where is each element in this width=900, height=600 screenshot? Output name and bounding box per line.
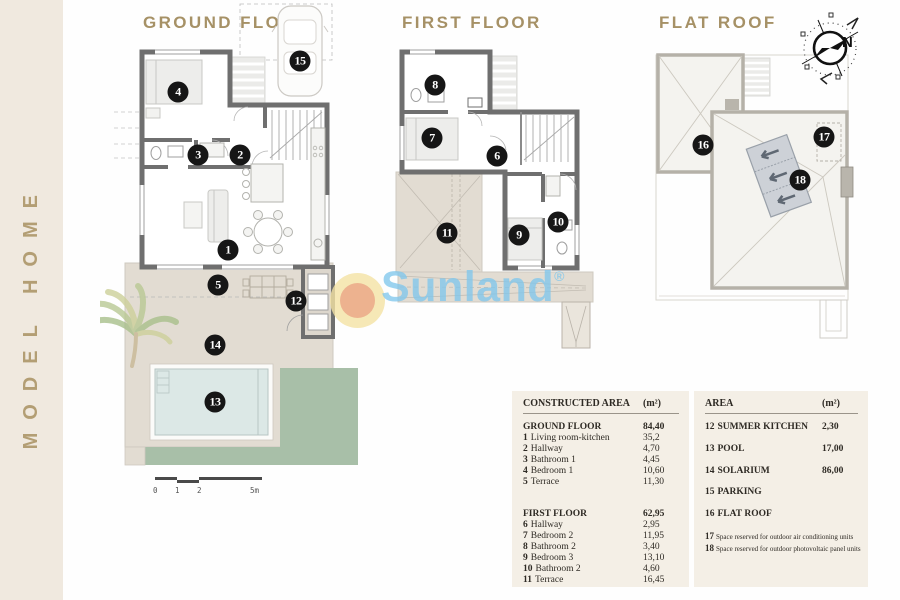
room-marker: 17 bbox=[814, 127, 835, 148]
sun-logo-inner-icon bbox=[340, 283, 375, 318]
sunland-watermark: Sunland® bbox=[330, 262, 600, 342]
flat-roof-plan: 16 17 18 bbox=[645, 45, 880, 345]
table-header: AREA (m²) bbox=[705, 398, 858, 414]
scale-label-1: 1 bbox=[175, 486, 180, 495]
table-row: 6Hallway2,95 bbox=[523, 520, 679, 531]
table-row: 9Bedroom 313,10 bbox=[523, 553, 679, 564]
room-marker: 18 bbox=[790, 170, 811, 191]
constructed-area-table: CONSTRUCTED AREA (m²) GROUND FLOOR 84,40… bbox=[512, 391, 689, 587]
room-marker: 7 bbox=[422, 128, 443, 149]
brand-wrap: MODEL HOME bbox=[0, 138, 63, 494]
room-marker: 3 bbox=[188, 145, 209, 166]
room-marker: 10 bbox=[548, 212, 569, 233]
table-row: 1Living room-kitchen35,2 bbox=[523, 433, 679, 444]
section-title-row: GROUND FLOOR 84,40 bbox=[523, 422, 679, 433]
ground-floor-drawing bbox=[100, 0, 380, 500]
ground-floor-plan: 0 1 2 5m 1 2 3 4 5 12 13 14 15 bbox=[100, 0, 380, 500]
room-marker: 9 bbox=[509, 225, 530, 246]
room-marker: 15 bbox=[290, 51, 311, 72]
table-row: 10Bathroom 24,60 bbox=[523, 564, 679, 575]
scale-bar bbox=[155, 477, 262, 483]
table-row: 2Hallway4,70 bbox=[523, 444, 679, 455]
first-floor-section: FIRST FLOOR 62,95 6Hallway2,95 7Bedroom … bbox=[523, 509, 679, 585]
table-row: 15PARKING bbox=[705, 487, 858, 498]
ground-floor-section: GROUND FLOOR 84,40 1Living room-kitchen3… bbox=[523, 422, 679, 487]
scale-label-2: 2 bbox=[197, 486, 202, 495]
table-row: 4Bedroom 110,60 bbox=[523, 466, 679, 477]
room-marker: 16 bbox=[693, 135, 714, 156]
table-row: 12SUMMER KITCHEN2,30 bbox=[705, 422, 858, 433]
table-row: 14SOLARIUM86,00 bbox=[705, 466, 858, 477]
table-row: 8Bathroom 23,40 bbox=[523, 542, 679, 553]
scale-label-0: 0 bbox=[153, 486, 158, 495]
room-marker: 14 bbox=[205, 335, 226, 356]
room-marker: 11 bbox=[437, 223, 458, 244]
room-marker: 5 bbox=[208, 275, 229, 296]
room-marker: 8 bbox=[425, 75, 446, 96]
compass-north-label: N bbox=[842, 34, 853, 51]
table-row: 5Terrace11,30 bbox=[523, 477, 679, 488]
room-marker: 12 bbox=[286, 291, 307, 312]
room-marker: 1 bbox=[218, 240, 239, 261]
table-row: 7Bedroom 211,95 bbox=[523, 531, 679, 542]
table-header: CONSTRUCTED AREA (m²) bbox=[523, 398, 679, 414]
section-title-row: FIRST FLOOR 62,95 bbox=[523, 509, 679, 520]
area-table: AREA (m²) 12SUMMER KITCHEN2,30 13POOL17,… bbox=[694, 391, 868, 587]
brand-text: MODEL HOME bbox=[20, 182, 43, 449]
flat-roof-drawing bbox=[645, 45, 880, 345]
table-note: 17Space reserved for outdoor air conditi… bbox=[705, 531, 858, 543]
table-row: 16FLAT ROOF bbox=[705, 509, 858, 520]
sidebar: MODEL HOME bbox=[0, 0, 63, 600]
scale-label-5m: 5m bbox=[250, 486, 259, 495]
room-marker: 6 bbox=[487, 146, 508, 167]
registered-mark: ® bbox=[554, 268, 565, 284]
first-floor-title: FIRST FLOOR bbox=[402, 13, 542, 33]
room-marker: 2 bbox=[230, 145, 251, 166]
table-row: 3Bathroom 14,45 bbox=[523, 455, 679, 466]
table-note: 18Space reserved for outdoor photovoltai… bbox=[705, 543, 858, 555]
compass-icon bbox=[792, 8, 872, 88]
flat-roof-title: FLAT ROOF bbox=[659, 13, 777, 33]
floorplan-sheet: { "brand": { "text": "MODEL HOME" }, "pl… bbox=[0, 0, 900, 600]
room-marker: 13 bbox=[205, 392, 226, 413]
table-row: 13POOL17,00 bbox=[705, 444, 858, 455]
room-marker: 4 bbox=[168, 82, 189, 103]
table-row: 11Terrace16,45 bbox=[523, 575, 679, 586]
watermark-text: Sunland® bbox=[381, 263, 565, 312]
